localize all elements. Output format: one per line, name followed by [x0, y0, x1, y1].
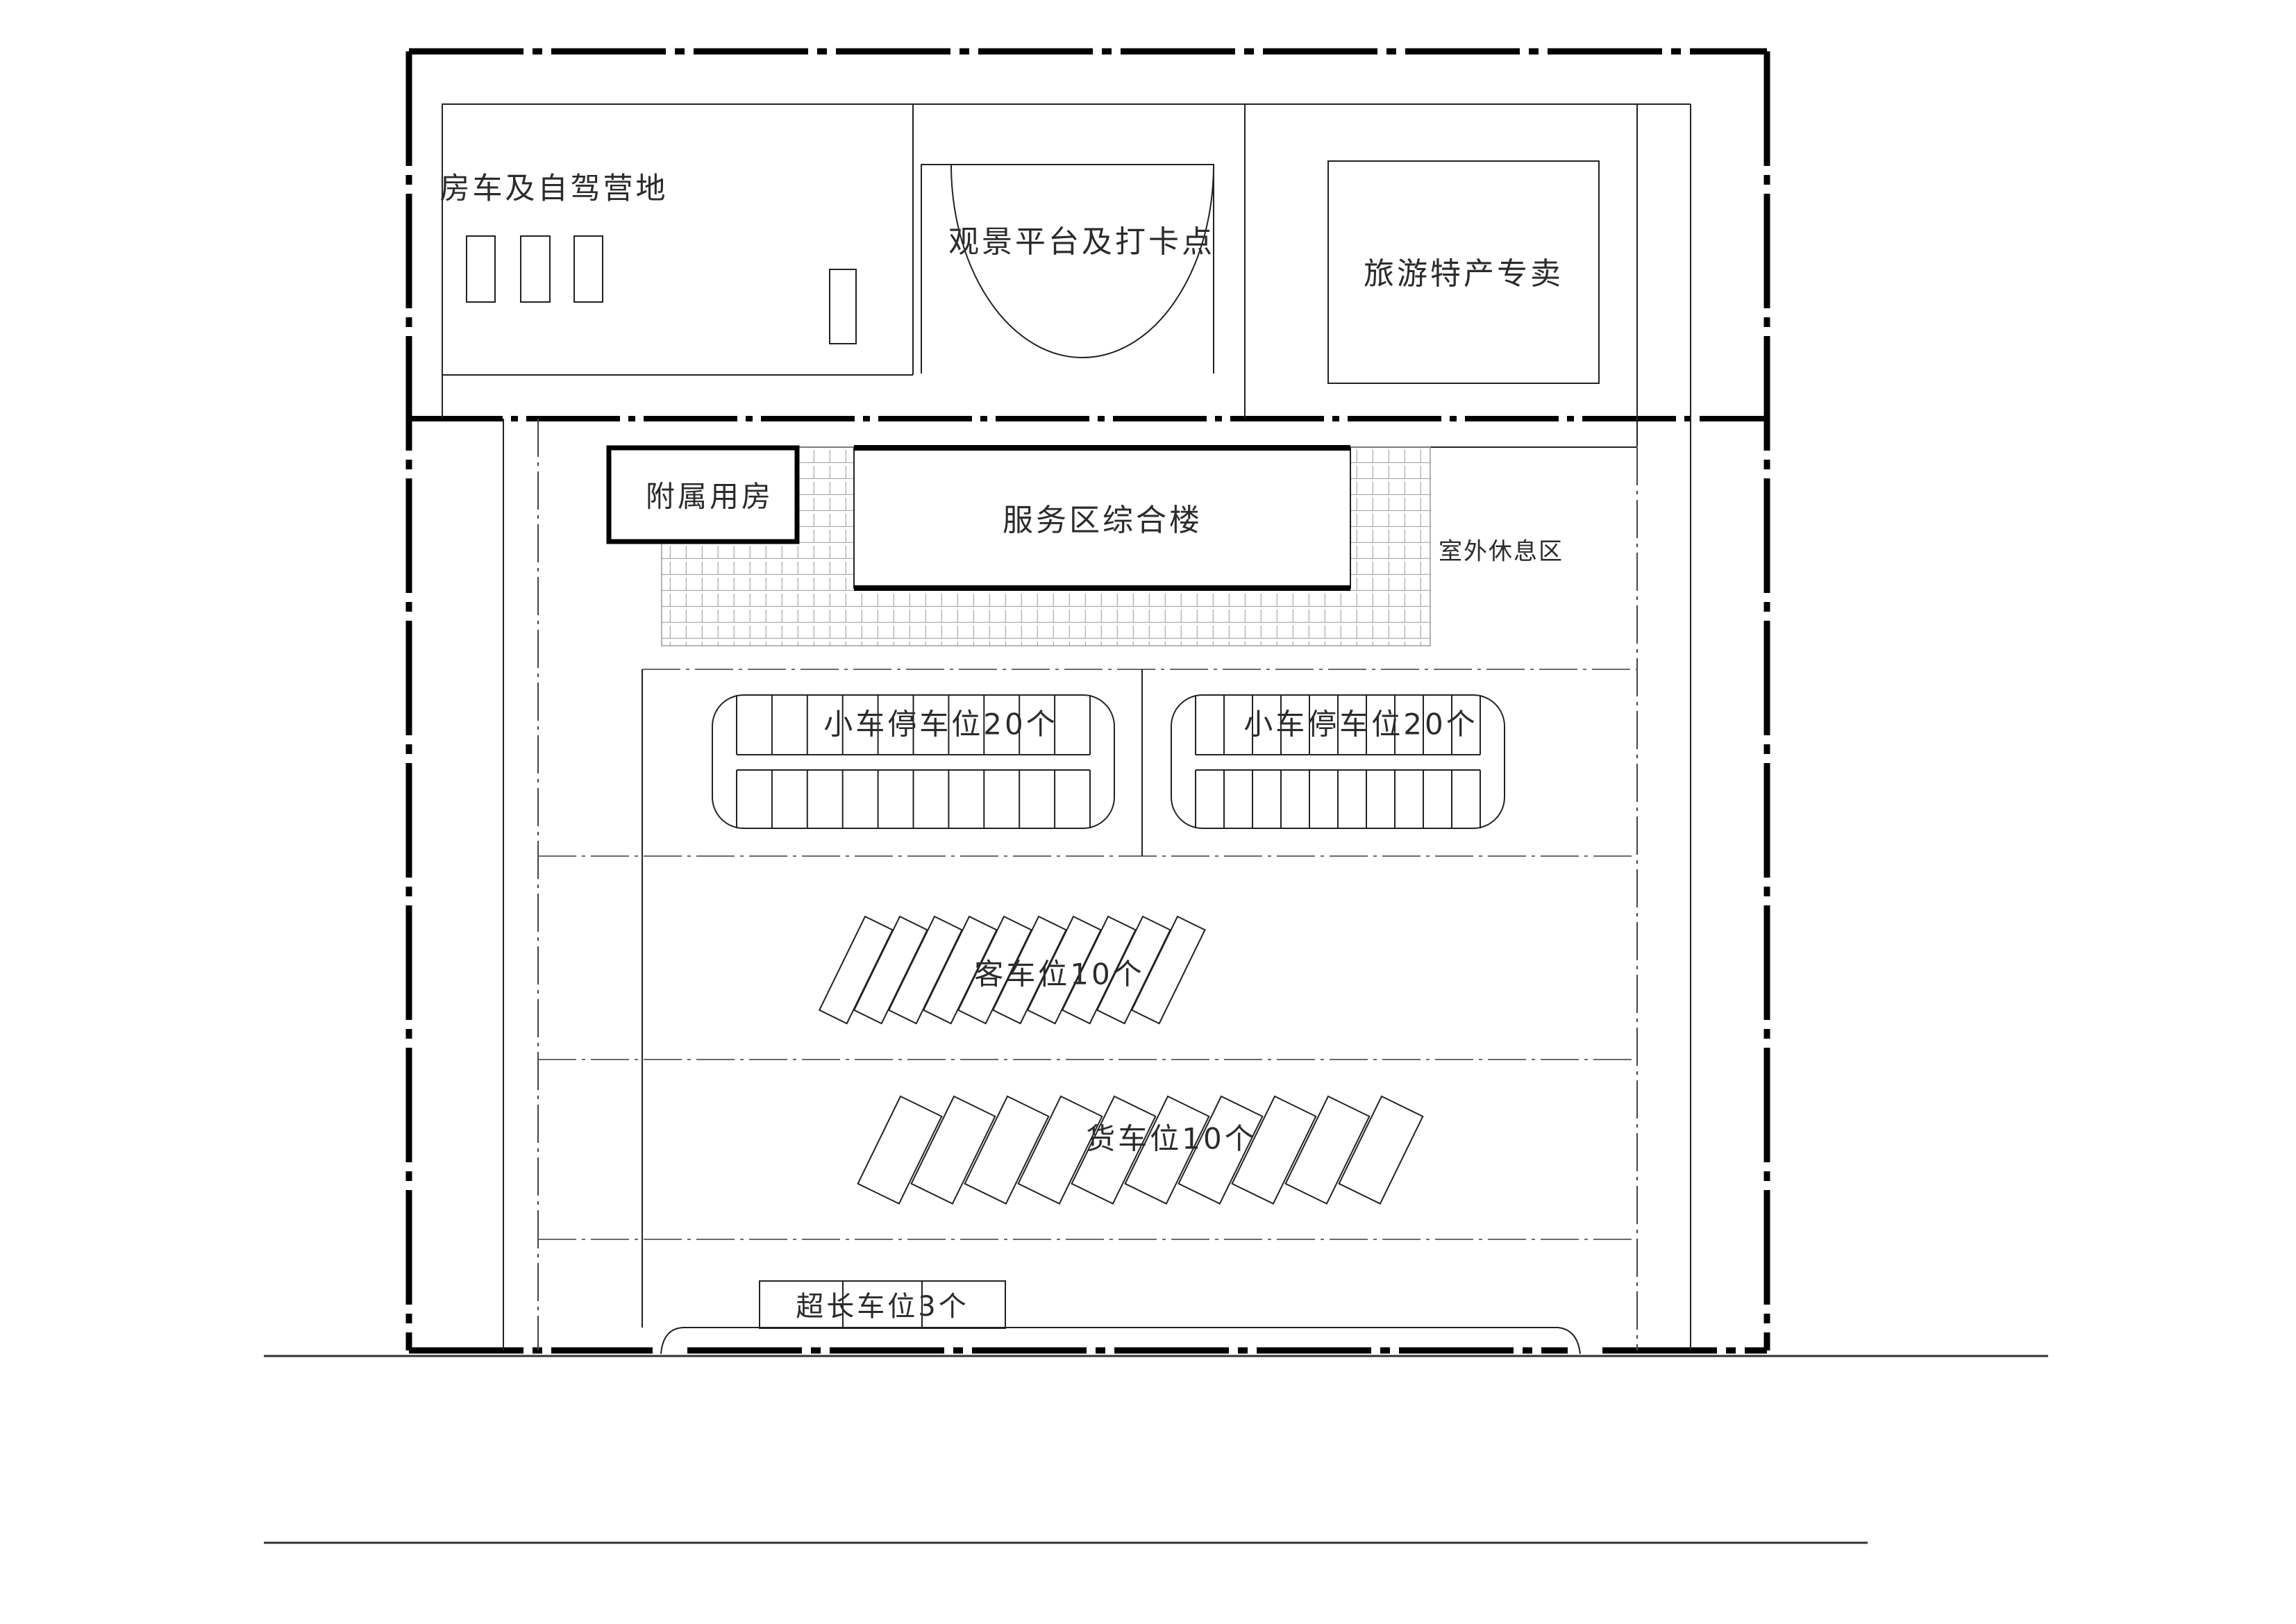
annex-building-box — [609, 448, 797, 542]
site-plan-canvas — [0, 0, 2296, 1624]
site-boundary — [409, 51, 1767, 1350]
ground-lines — [264, 1356, 2048, 1543]
long-stall-row — [760, 1281, 1005, 1328]
site-plan: 房车及自驾营地 观景平台及打卡点 旅游特产专卖 附属用房 服务区综合楼 室外休息… — [0, 0, 2296, 1624]
car-lot-left — [712, 695, 1114, 828]
complex-building-box — [854, 448, 1350, 588]
camp-zone-box — [442, 104, 913, 375]
platform-arc — [951, 165, 1214, 358]
bus-stall-row — [819, 916, 1205, 1023]
camp-pads — [467, 236, 856, 344]
truck-stall-row — [858, 1096, 1423, 1204]
left-road-lines — [503, 419, 538, 1350]
top-strip-outline — [442, 104, 1691, 1350]
car-lot-right — [1171, 695, 1505, 828]
shop-box — [662, 104, 1637, 447]
platform-box — [921, 104, 1245, 419]
